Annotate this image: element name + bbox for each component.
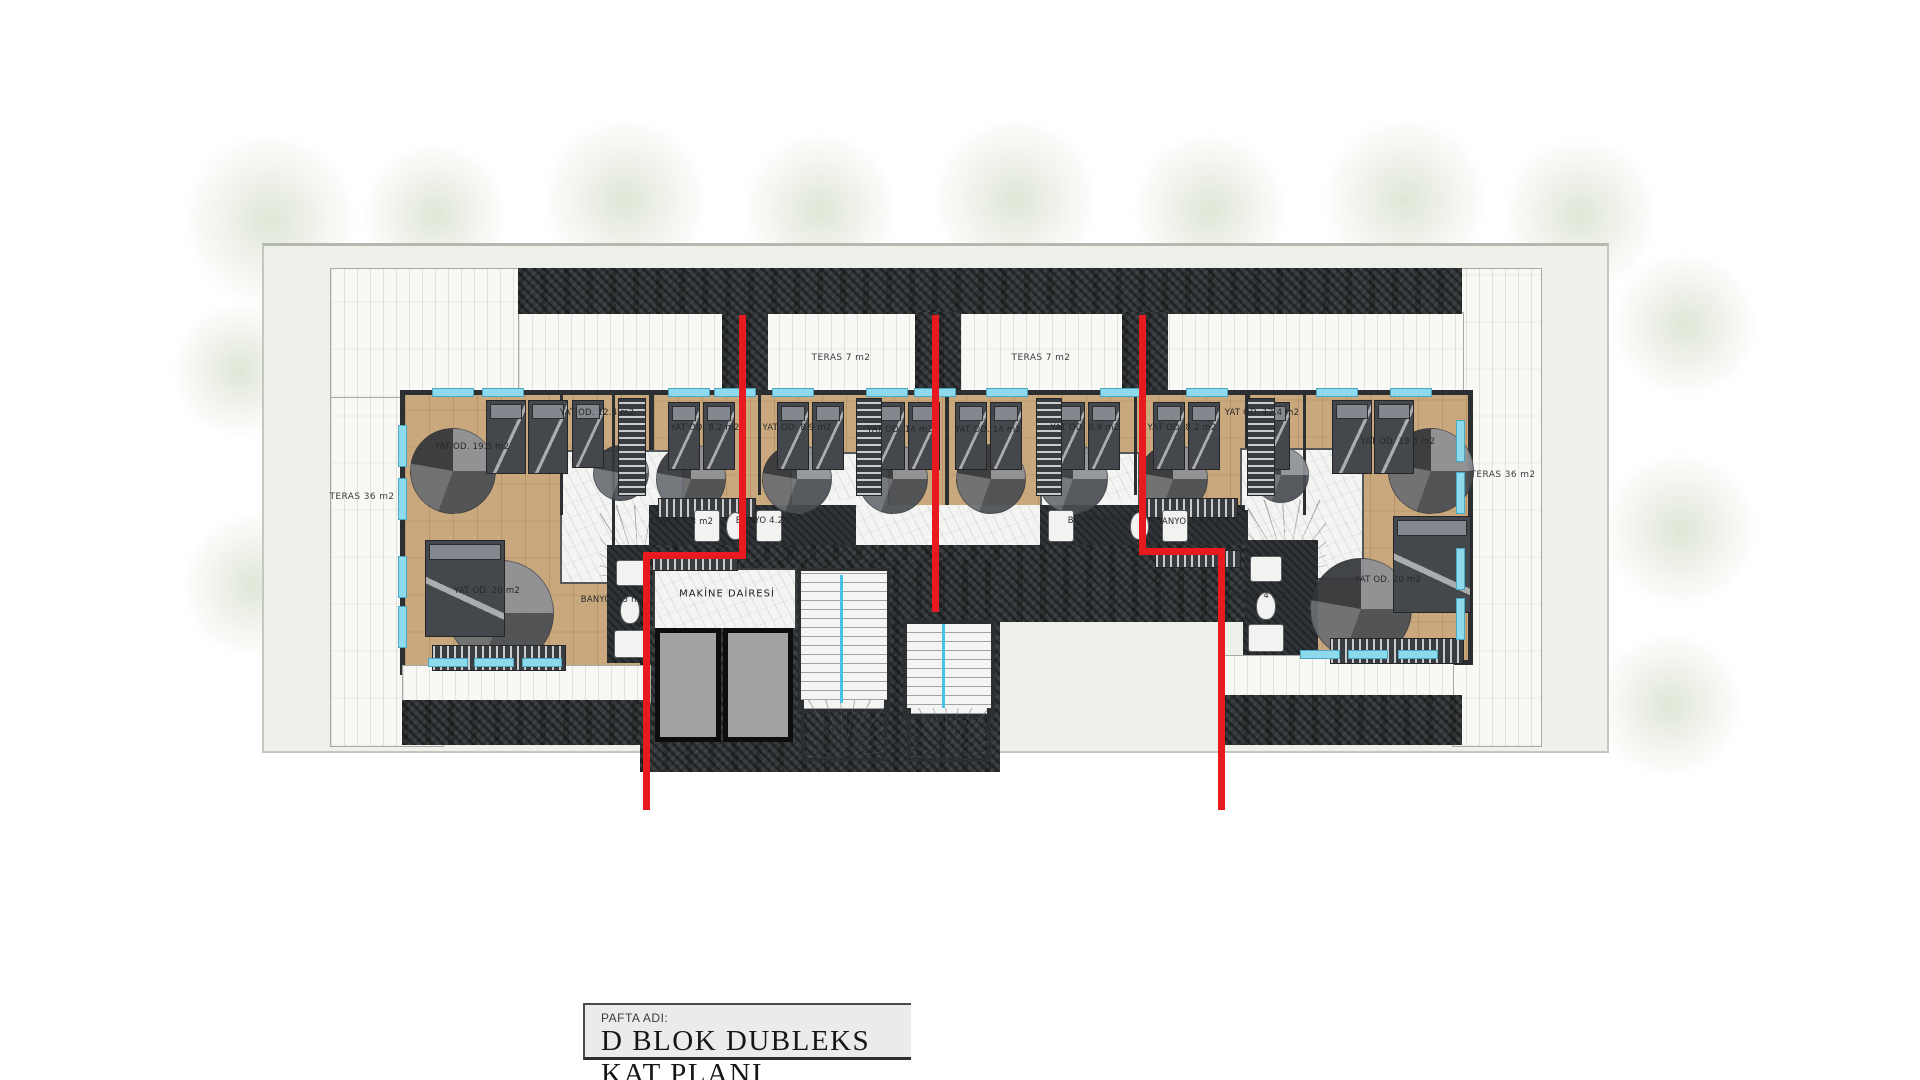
room-label: YAT OD. 19.5 m2 [435, 442, 510, 452]
section-line-a-tail [643, 552, 650, 810]
bed-pillow [490, 404, 522, 419]
room-label: TERAS 7 m2 [1012, 353, 1071, 363]
window-strip [1456, 472, 1465, 514]
title-block: PAFTA ADI: D BLOK DUBLEKS KAT PLANI [583, 1003, 911, 1060]
bed [703, 402, 735, 470]
bed-pillow [1157, 406, 1181, 421]
bed-pillow [1397, 520, 1467, 536]
window-strip [1456, 548, 1465, 590]
bed-pillow [1092, 406, 1116, 421]
bed-pillow [707, 406, 731, 421]
window-strip [986, 388, 1028, 397]
window-strip [1300, 650, 1340, 659]
bed-pillow [1378, 404, 1410, 419]
window-strip [1316, 388, 1358, 397]
shower-fixture [1048, 510, 1074, 542]
partition [1134, 395, 1137, 495]
window-strip [866, 388, 908, 397]
shower-fixture [1250, 556, 1282, 582]
upper-terrace-strip [518, 312, 1464, 398]
window-strip [1456, 420, 1465, 462]
bed-pillow [1192, 406, 1216, 421]
window-strip [398, 478, 407, 520]
tree-canopy [1600, 450, 1760, 610]
shower-fixture [756, 510, 782, 542]
window-strip [1186, 388, 1228, 397]
window-strip [398, 425, 407, 467]
room-label: YAT OD. 8.9 m2 [1051, 423, 1120, 433]
room-label: YAT OD. 8.9 m2 [763, 423, 832, 433]
section-line-c-tail [1218, 548, 1225, 810]
room-label: YAT OD. 14 m2 [867, 425, 933, 435]
bed [812, 402, 844, 470]
elevator-shaft-1 [655, 628, 721, 742]
room-label: TERAS 7 m2 [812, 353, 871, 363]
core-stair [798, 568, 890, 712]
section-line-c-jog [1139, 548, 1225, 555]
window-strip [428, 658, 468, 667]
room-label: BANYO 4.3 m2 [649, 517, 713, 527]
section-line-a-top [739, 315, 746, 558]
window-strip [1456, 598, 1465, 640]
window-strip [714, 388, 756, 397]
room-label: TERAS 36 m2 [329, 492, 394, 502]
wardrobe [1140, 498, 1238, 518]
room-label: BANYO 3.5 m2 [581, 595, 645, 605]
room-label: YAT OD. 8.2 m2 [671, 423, 740, 433]
room-label: YAT OD. 20 m2 [1355, 575, 1421, 585]
window-strip [522, 658, 562, 667]
sheet-title: D BLOK DUBLEKS KAT PLANI [601, 1025, 911, 1080]
window-strip [1348, 650, 1388, 659]
roof-band-top [518, 268, 1462, 314]
window-strip [1100, 388, 1142, 397]
room-label: BANYO 4 m2 [1230, 591, 1286, 601]
secondary-stair-fan [907, 708, 991, 762]
floor-plan-canvas: TERAS 36 m2TERAS 36 m2TERAS 7 m2TERAS 7 … [0, 0, 1920, 1080]
bed [1153, 402, 1185, 470]
section-line-c-top [1139, 315, 1146, 555]
window-strip [432, 388, 474, 397]
window-strip [398, 606, 407, 648]
tree-canopy [1610, 250, 1760, 400]
terrace-deck-left-corner [330, 268, 524, 398]
bed-pillow [994, 406, 1018, 421]
room-label: YAT OD. 20 m2 [454, 586, 520, 596]
bed [1188, 402, 1220, 470]
bed-pillow [672, 406, 696, 421]
bed [486, 400, 526, 474]
room-label: MAKİNE DAİRESİ [679, 589, 775, 600]
roof-band-bottom-left [402, 700, 649, 745]
window-strip [772, 388, 814, 397]
window-strip [474, 658, 514, 667]
wardrobe [856, 398, 882, 496]
room-label: YAT OD. 14 m2 [955, 425, 1021, 435]
window-strip [482, 388, 524, 397]
bed-pillow [781, 406, 805, 421]
partition [1303, 395, 1306, 515]
bed [777, 402, 809, 470]
secondary-stair [903, 620, 995, 718]
room-label: BANYO 4.3 m2 [1156, 517, 1220, 527]
room-label: YAT OD. 8.2 m2 [1148, 423, 1217, 433]
bed-pillow [429, 544, 501, 560]
room-label: BANYO 4.2 m2 [1068, 516, 1132, 526]
bed [1088, 402, 1120, 470]
room-label: YAT OD. 19.5 m2 [1361, 437, 1436, 447]
section-line-b [932, 315, 939, 612]
stair-divider [840, 575, 843, 703]
room-label: YAT OD. 12.4 m2 [1225, 408, 1300, 418]
core-stair-fan [801, 700, 887, 761]
room-label: YAT OD. 12.4 m2 [560, 408, 635, 418]
partition [758, 395, 761, 495]
window-strip [668, 388, 710, 397]
elevator-shaft-2 [723, 628, 793, 742]
room-label: TERAS 36 m2 [1470, 470, 1535, 480]
bed-pillow [816, 406, 840, 421]
rug [410, 428, 496, 514]
window-strip [1390, 388, 1432, 397]
section-line-a-jog [646, 552, 746, 559]
tree-canopy [1595, 630, 1745, 780]
bed [990, 402, 1022, 470]
bed [668, 402, 700, 470]
stair-divider-2 [942, 624, 945, 708]
roof-band-bottom-right [1220, 695, 1462, 745]
wardrobe [1036, 398, 1062, 496]
bed [955, 402, 987, 470]
bed-pillow [959, 406, 983, 421]
shower-fixture [1248, 624, 1284, 652]
bed-pillow [1336, 404, 1368, 419]
window-strip [398, 556, 407, 598]
sheet-name-label: PAFTA ADI: [601, 1011, 911, 1025]
window-strip [1398, 650, 1438, 659]
